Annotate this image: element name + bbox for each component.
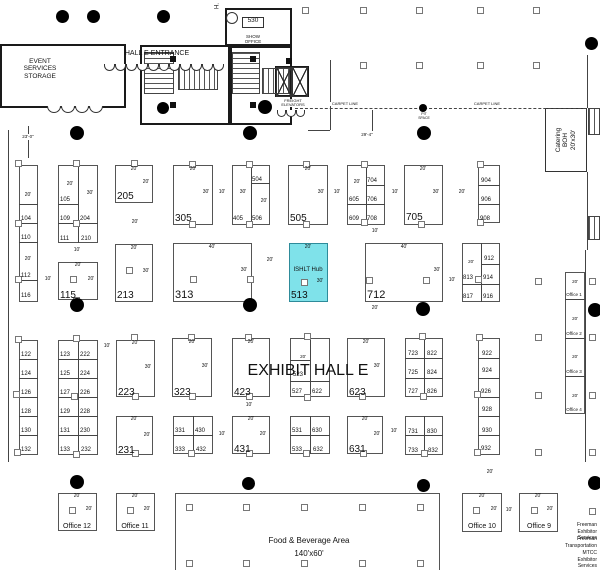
column-dot [417,479,430,492]
column-marker [13,391,20,398]
booth-num-916: 916 [483,294,493,301]
booth-num-622: 622 [312,389,322,396]
dim: 20' [144,433,151,439]
dim: 20' [131,246,138,252]
column-marker [360,62,367,69]
column-dot [157,102,169,114]
booth-num-230: 230 [80,428,90,435]
ishlt-hub-label: ISHLT Hub [293,267,322,274]
booth-num-125: 125 [60,371,70,378]
dim: 20' [190,167,197,173]
dim: 20' [572,316,578,321]
column-marker [589,392,596,399]
cell [462,284,500,285]
dim: 20' [305,245,312,251]
column-marker [188,450,195,457]
column-marker [589,449,596,456]
booth-num-928: 928 [482,407,492,414]
door-arc [286,110,295,117]
carpet-line [295,108,586,109]
column-marker [243,504,250,511]
aisle-dim: 20' [372,306,379,312]
equipment-icon [250,102,256,108]
booth-num-232: 232 [81,447,91,454]
booth-num-630: 630 [312,428,322,435]
column-marker [186,504,193,511]
freight-wall [308,130,330,131]
stairs-hatch [588,108,600,135]
dim: 20' [572,393,578,398]
booth-num-210: 210 [81,236,91,243]
column-marker [589,508,596,515]
booth-num-513: 513 [291,290,308,301]
booth-num-826: 826 [427,389,437,396]
column-dot [258,100,272,114]
cell [19,204,38,205]
cell [478,416,500,417]
cell [565,299,585,300]
booth-num-231: 231 [118,445,135,456]
dim: 20' [305,167,312,173]
booth-num-205: 205 [117,191,134,202]
catering-boh-label: Catering BOH 20'x30' [555,123,577,157]
carpet-line-label-2: CARPET LINE [472,102,502,106]
dim: 20' [86,507,93,513]
dim: 20' [132,494,139,500]
booth-num-817: 817 [463,294,473,301]
column-dot [87,10,100,23]
hall-e-entrance-label: HALL E ENTRANCE [125,50,189,58]
dim-23-0: 23'-0" [20,134,35,139]
booth-num-822: 822 [427,351,437,358]
dim: 20' [572,354,578,359]
dim: 20' [132,341,139,347]
booth-num-228: 228 [80,409,90,416]
dim: 40' [401,245,408,251]
column-marker [73,220,80,227]
dim: 30' [433,190,440,196]
door-arc [89,106,103,113]
h-wall-label: H. [215,3,222,9]
aisle-dim: 10' [74,248,81,254]
cell [565,376,585,377]
column-marker [359,560,366,567]
cell [19,359,38,360]
booth-num-110: 110 [21,235,31,242]
door-arc [277,110,286,117]
column-marker [421,450,428,457]
aisle-dim: 10' [506,508,513,514]
left-wall [8,130,9,462]
booth-num-704: 704 [367,178,377,185]
booth-num-124: 124 [21,371,31,378]
booth-num-527: 527 [292,389,302,396]
door-arc [75,106,89,113]
aisle-dim: 10' [45,277,52,283]
aisle-dim: 10' [219,432,226,438]
freight-elevators-label: FREIGHT ELEVATORS [279,99,306,108]
cell [478,185,500,186]
column-dot [157,10,170,23]
cell [481,264,500,265]
dim: 20' [479,494,486,500]
column-dot [70,475,84,489]
booth-num-128: 128 [21,409,31,416]
column-marker [186,560,193,567]
cell [290,435,330,436]
dim: 20' [74,494,81,500]
dim: 20' [143,180,150,186]
office-9-label: Office 9 [527,523,551,531]
column-marker [73,335,80,342]
entrance-doors-icon [104,64,224,71]
column-marker [477,7,484,14]
booth-num-731: 731 [408,429,418,436]
legend-line-1: Freeman [577,523,597,529]
booth-num-105: 105 [60,197,70,204]
equipment-icon [170,102,176,108]
booth-num-126: 126 [21,390,31,397]
door-arc [137,64,148,71]
door-arc [159,64,170,71]
aisle-dim: 10' [246,403,253,409]
storage-doors-icon [47,106,103,113]
column-marker [247,276,254,283]
cell [290,381,330,382]
aisle-dim: 20' [459,190,466,196]
column-marker [474,391,481,398]
booth-num-305: 305 [175,213,192,224]
column-marker [243,560,250,567]
office-3-label: Office 3 [566,369,581,374]
stairs-hatch [588,216,600,240]
dim: 20' [374,432,381,438]
cell [58,397,98,398]
column-dot [243,126,257,140]
aisle-dim: 10' [219,190,226,196]
cell [58,416,98,417]
column-marker [420,393,427,400]
column-marker [417,504,424,511]
column-marker [359,504,366,511]
column-marker [361,161,368,168]
dim: 20' [131,417,138,423]
dim: 30' [240,190,247,196]
dim: 20' [189,340,196,346]
booth-num-912: 912 [484,256,494,263]
column-marker [416,62,423,69]
column-marker [417,560,424,567]
booth-num-423: 423 [234,387,251,398]
column-dot [243,298,257,312]
dim: 20' [491,507,498,513]
booth-num-430: 430 [195,428,205,435]
column-marker [302,7,309,14]
booth-num-832: 832 [428,448,438,455]
column-marker [301,560,308,567]
column-dot [417,126,431,140]
column-dot [585,37,598,50]
booth-num-331: 331 [175,428,185,435]
booth-num-926: 926 [481,389,491,396]
dim: 30' [87,191,94,197]
column-marker [126,267,133,274]
column-marker [533,62,540,69]
strip-904[interactable] [478,165,500,223]
booth-num-708: 708 [367,216,377,223]
dim-line [28,126,29,158]
dim: 30' [202,364,209,370]
column-marker [416,7,423,14]
cell [478,435,500,436]
booth-num-224: 224 [80,371,90,378]
booth-num-727: 727 [408,389,418,396]
office-10-label: Office 10 [468,523,496,531]
booth-num-813: 813 [463,275,473,282]
aisle-dim: 10' [391,429,398,435]
column-marker [535,334,542,341]
column-dot [56,10,69,23]
dim: 20' [354,180,361,186]
cell [405,378,443,379]
dim: 30' [318,190,325,196]
carpet-line-label-1: CARPET LINE [330,102,360,106]
column-marker [475,276,482,283]
storage-room [0,44,126,108]
column-dot [242,477,255,490]
cell [58,378,98,379]
column-marker [473,507,480,514]
door-swing-icon [226,12,238,24]
label-530: 530 [248,17,259,24]
booth-num-506: 506 [252,216,262,223]
legend-line-5: MTCC [583,551,597,557]
booth-num-914: 914 [483,275,493,282]
equipment-icon [250,56,256,62]
office-12-label: Office 12 [63,523,91,531]
column-dot [70,126,84,140]
booth-num-132: 132 [21,447,31,454]
booth-num-111: 111 [60,236,69,243]
dim: 20' [547,507,554,513]
booth-num-631: 631 [349,444,366,455]
dim: 20' [468,259,474,264]
cell [347,204,385,205]
column-marker [476,334,483,341]
dim: 30' [434,268,441,274]
booth-num-204: 204 [80,216,90,223]
cell [478,358,500,359]
legend-line-4: Transportation [565,544,597,550]
booth-num-431: 431 [234,444,251,455]
aisle-dim: 20' [132,220,139,226]
column-marker [303,450,310,457]
column-marker [71,393,78,400]
door-arc [61,106,75,113]
booth-num-505: 505 [290,213,307,224]
door-arc [191,64,202,71]
column-dot [588,303,600,317]
freight-wall [330,60,331,130]
column-marker [15,160,22,167]
booth-num-104: 104 [21,216,31,223]
dim: 20' [25,257,32,263]
dim: 20' [25,193,32,199]
cell [478,397,500,398]
cell [58,204,78,205]
column-marker [589,334,596,341]
booth-num-609: 609 [349,216,359,223]
dim: 20' [572,279,578,284]
column-marker [535,278,542,285]
column-marker [73,451,80,458]
booth-num-131: 131 [60,428,70,435]
dim: 20' [260,432,267,438]
right-wall [585,250,586,462]
column-marker [589,278,596,285]
booth-num-930: 930 [482,428,492,435]
cell [424,338,425,397]
booth-num-112: 112 [21,273,31,280]
office-2-label: Office 2 [566,331,581,336]
column-marker [474,449,481,456]
cell [19,397,38,398]
booth-num-127: 127 [60,390,70,397]
dim: 20' [535,494,542,500]
cell [58,435,98,436]
column-marker [301,279,308,286]
door-arc [180,64,191,71]
door-arc [202,64,213,71]
column-marker [190,276,197,283]
column-marker [69,507,76,514]
door-arc [148,64,159,71]
booth-num-323: 323 [174,387,191,398]
booth-num-133: 133 [60,447,70,454]
column-dot [588,476,600,490]
column-marker [423,277,430,284]
booth-num-222: 222 [80,352,90,359]
door-arc [213,64,224,71]
column-marker [366,277,373,284]
exhibit-hall-e-title: EXHIBIT HALL E [248,362,369,380]
cell [366,185,385,186]
booth-num-623: 623 [349,387,366,398]
booth-num-906: 906 [481,197,491,204]
dim: 20' [261,199,268,205]
door-arc [47,106,61,113]
cell [481,243,482,302]
column-marker [533,7,540,14]
office-1-label: Office 1 [566,292,581,297]
dim: 20' [363,340,370,346]
dim-line [372,110,373,131]
legend-line-6: Exhibitor Services [578,558,597,569]
booth-num-130: 130 [21,428,31,435]
door-arc [115,64,126,71]
column-marker [14,449,21,456]
booth-num-523: 523 [293,372,303,379]
dim: 40' [209,245,216,251]
freight-elevator-icon [292,67,308,97]
dim: 20' [300,354,306,359]
column-dot [416,302,430,316]
booth-num-932: 932 [481,446,491,453]
booth-num-109: 109 [60,216,70,223]
freight-elevator-icon [276,67,292,97]
aisle-dim: 10' [392,190,399,196]
cell [19,435,38,436]
freight-doors-icon [277,110,305,117]
booth-num-226: 226 [80,390,90,397]
door-arc [126,64,137,71]
aisle-dim: 20' [487,470,494,476]
column-marker [304,394,311,401]
column-marker [127,507,134,514]
cell [58,359,98,360]
column-marker [360,7,367,14]
door-arc [169,64,180,71]
booth-num-924: 924 [482,368,492,375]
booth-num-922: 922 [482,351,492,358]
cell [478,378,500,379]
booth-num-723: 723 [408,351,418,358]
dim-29-4: 29'-4" [359,132,374,137]
cell [19,242,38,243]
aisle-dim: 10' [334,190,341,196]
dim: 30' [317,279,324,285]
column-marker [419,333,426,340]
booth-num-123: 123 [60,352,70,359]
aisle-dim: 10' [104,344,111,350]
column-marker [535,392,542,399]
booth-num-733: 733 [408,448,418,455]
door-arc [104,64,115,71]
booth-num-213: 213 [117,290,134,301]
dim: 20' [75,263,82,269]
column-marker [535,449,542,456]
booth-num-706: 706 [367,197,377,204]
cell [19,416,38,417]
show-office-label: SHOW OFFICE [245,34,262,44]
column-marker [531,507,538,514]
door-arc [296,110,305,117]
column-marker [246,161,253,168]
column-marker [477,161,484,168]
booth-num-605: 605 [349,197,359,204]
cell [19,378,38,379]
pit-space-label: PIT SPACE [418,113,430,121]
dim: 20' [131,167,138,173]
dim: 20' [67,182,74,188]
booth-num-405: 405 [233,216,243,223]
office-4-label: Office 4 [566,407,581,412]
floor-plan: EVENT SERVICES STORAGEHALL E ENTRANCE530… [0,0,600,570]
dim: 20' [362,417,369,423]
booth-num-122: 122 [21,352,31,359]
equipment-icon [286,58,292,64]
booth-num-908: 908 [480,216,490,223]
booth-num-116: 116 [21,293,31,300]
dim: 20' [144,507,151,513]
column-dot [70,298,84,312]
dim: 20' [88,277,95,283]
booth-num-824: 824 [427,370,437,377]
booth-num-830: 830 [427,429,437,436]
aisle-dim: 10' [449,278,456,284]
booth-num-223: 223 [118,387,135,398]
column-dot [419,104,427,112]
